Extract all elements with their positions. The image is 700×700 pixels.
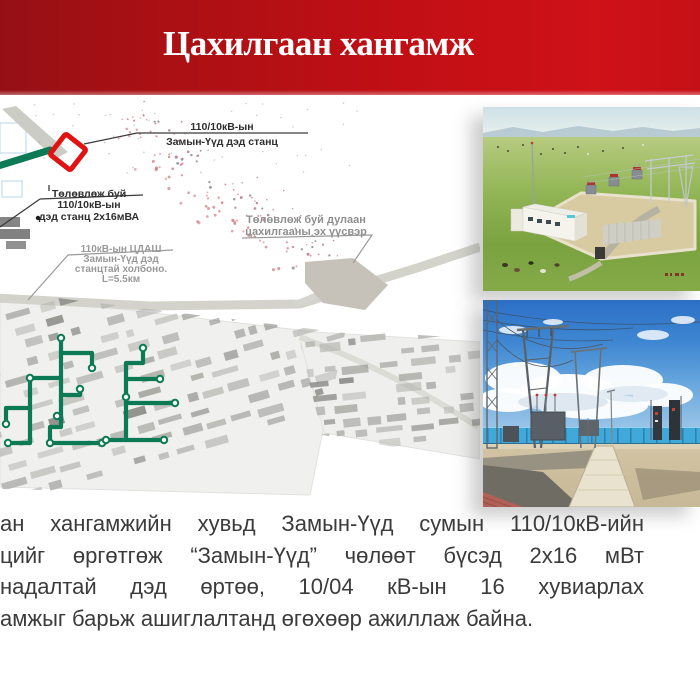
paragraph-line: цийг өргөтгөж “Замын-Үүд” чөлөөт бүсэд 2… (0, 540, 644, 572)
transmission-label-line4: L=5.5км (102, 274, 140, 285)
body-paragraph: ан хангамжийн хувьд Замын-Үүд сумын 110/… (0, 508, 644, 634)
presentation-slide: Цахилгаан хангамж (0, 0, 700, 700)
main-road (0, 247, 480, 306)
map-misc-blocks (0, 106, 68, 249)
paragraph-line: надалтай дэд өртөө, 10/04 кВ-ын 16 хувиа… (0, 571, 644, 603)
paragraph-line: амжыг барьж ашиглалтанд өгөхөөр ажиллаж … (0, 603, 644, 635)
planned-substation-label-line3: дэд станц 2х16мВА (39, 211, 140, 223)
substation-label-line2: Замын-Үүд дэд станц (166, 136, 278, 148)
paragraph-line: ан хангамжийн хувьд Замын-Үүд сумын 110/… (0, 508, 644, 540)
gate (595, 247, 605, 259)
slide-title: Цахилгаан хангамж (163, 26, 474, 61)
header-banner: Цахилгаан хангамж (0, 0, 700, 95)
heat-source-label-line2: цахилгааны эх үүсвэр (245, 226, 367, 238)
substation-photo-image (483, 300, 700, 507)
heat-source-label-line1: Төлөвлөж буй дулаан (246, 214, 366, 226)
substation-render-image (483, 107, 700, 291)
transformer-photo (531, 412, 565, 440)
substation-label-line1: 110/10кВ-ын (190, 121, 253, 133)
city-blocks-area (0, 247, 480, 495)
city-plan-map: 110/10кВ-ын Замын-Үүд дэд станц Төлөвлөж… (0, 95, 480, 515)
planned-substation-label-line2: 110/10кВ-ын (57, 199, 120, 211)
